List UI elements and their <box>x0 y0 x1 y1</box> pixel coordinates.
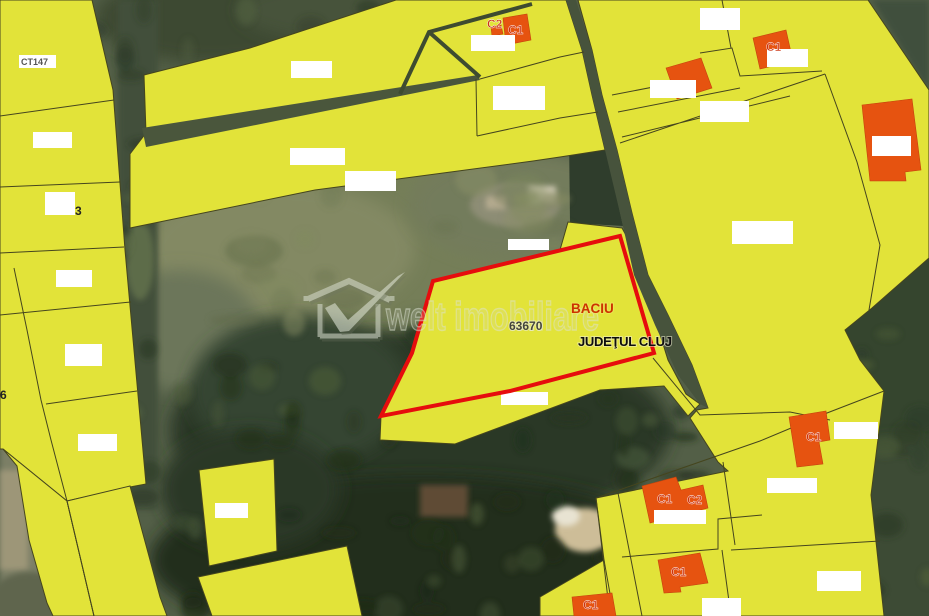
svg-text:C1: C1 <box>657 492 673 506</box>
svg-text:C1: C1 <box>583 598 599 612</box>
svg-text:63670: 63670 <box>509 319 543 333</box>
svg-text:C1: C1 <box>806 430 822 444</box>
svg-text:3: 3 <box>75 204 82 218</box>
svg-text:JUDEŢUL CLUJ: JUDEŢUL CLUJ <box>578 334 672 349</box>
svg-text:C1: C1 <box>508 23 524 37</box>
svg-text:CT147: CT147 <box>21 57 48 67</box>
svg-text:6: 6 <box>0 388 7 402</box>
svg-text:C2: C2 <box>687 493 703 507</box>
svg-text:welt imobiliare: welt imobiliare <box>385 295 599 339</box>
svg-text:C2: C2 <box>487 17 503 31</box>
svg-text:BACIU: BACIU <box>571 301 614 316</box>
svg-text:C1: C1 <box>671 565 687 579</box>
svg-text:C1: C1 <box>766 40 782 54</box>
